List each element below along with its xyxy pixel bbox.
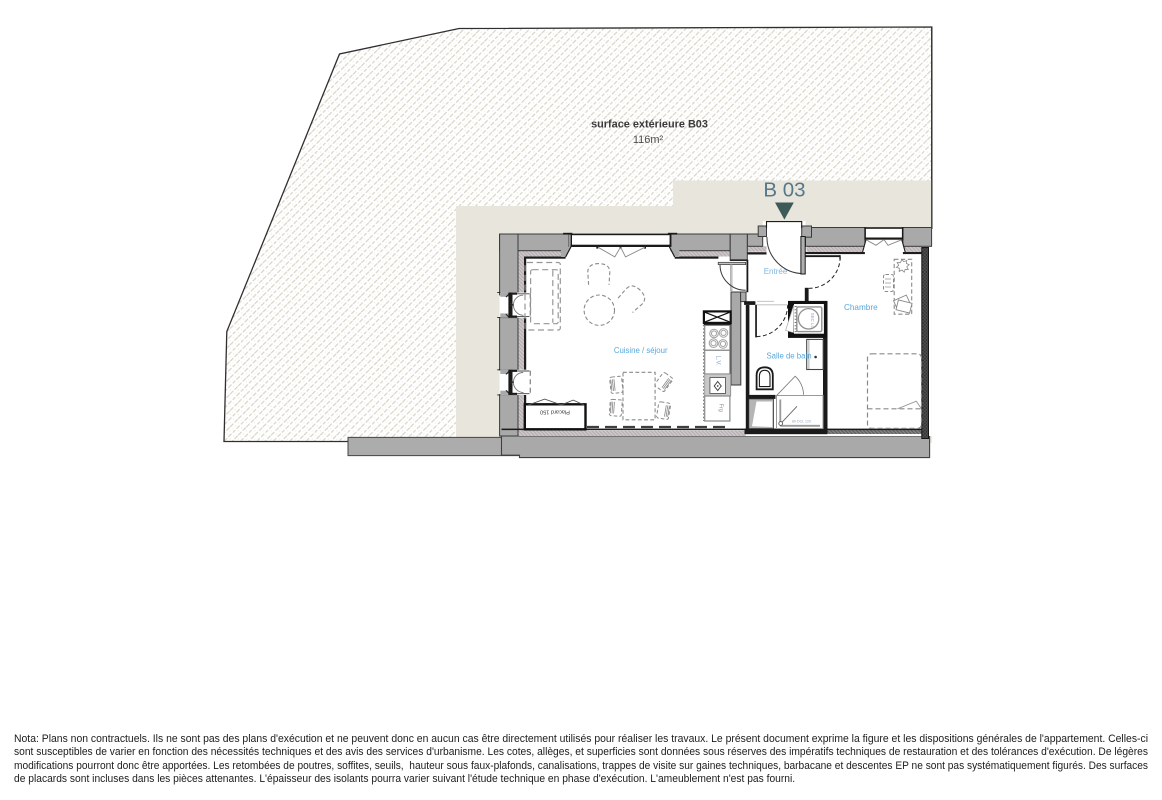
svg-text:Entrée: Entrée (764, 267, 788, 276)
svg-text:L.V.: L.V. (714, 356, 720, 366)
svg-text:Cuisine / séjour: Cuisine / séjour (614, 346, 668, 355)
svg-text:Frg: Frg (717, 404, 723, 412)
svg-text:80 DCL 120: 80 DCL 120 (792, 420, 811, 424)
svg-text:116m²: 116m² (633, 134, 664, 146)
svg-text:SEC LL: SEC LL (810, 313, 815, 329)
svg-text:B 03: B 03 (763, 179, 805, 202)
svg-text:Placard 150: Placard 150 (540, 409, 570, 415)
svg-text:Chambre: Chambre (844, 303, 878, 312)
svg-text:surface extérieure B03: surface extérieure B03 (591, 119, 708, 131)
svg-text:Salle de bain: Salle de bain (766, 352, 811, 361)
